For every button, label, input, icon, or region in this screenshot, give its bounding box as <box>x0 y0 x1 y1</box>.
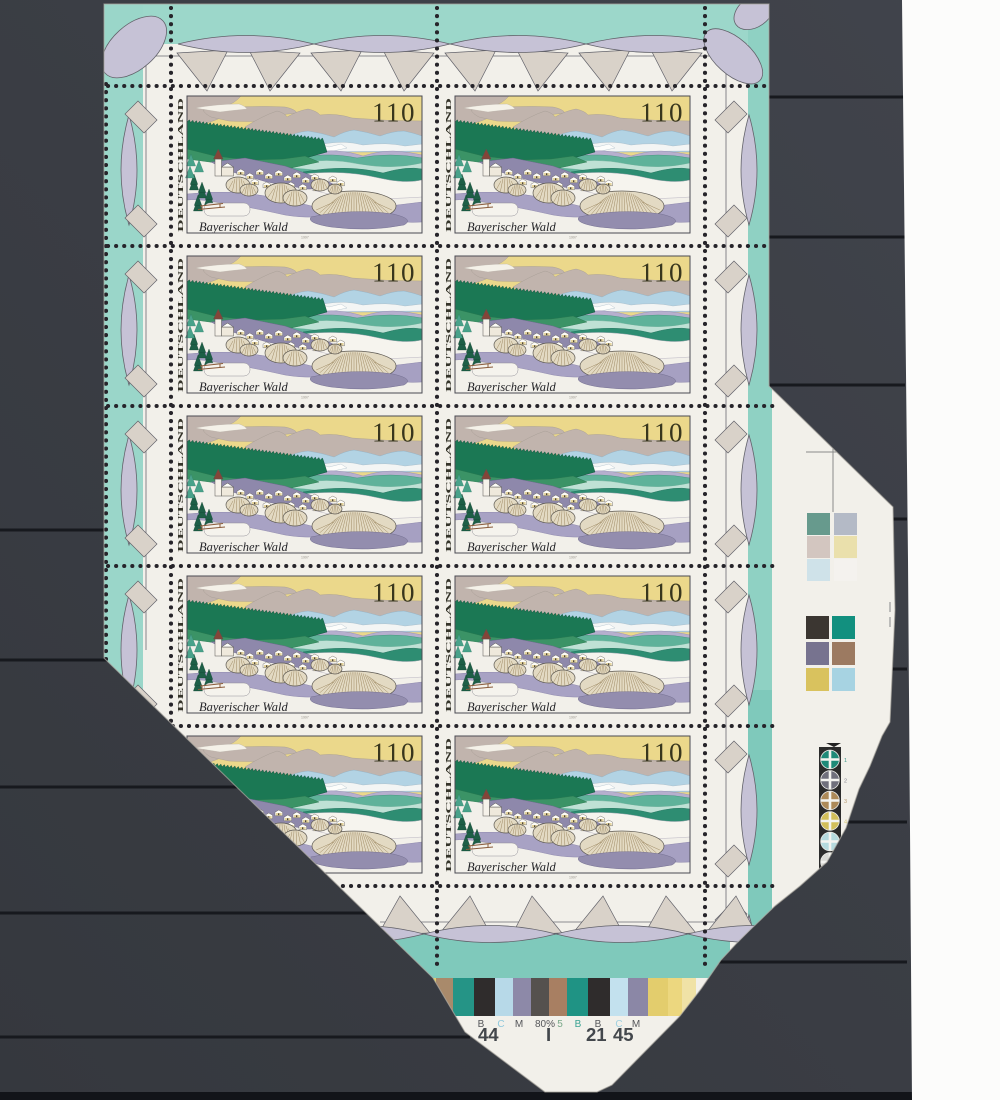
svg-text:45: 45 <box>613 1024 634 1045</box>
svg-text:1: 1 <box>844 758 847 764</box>
svg-text:5: 5 <box>557 1019 563 1030</box>
svg-text:I: I <box>546 1024 551 1045</box>
svg-text:3: 3 <box>844 799 847 805</box>
svg-text:2: 2 <box>844 779 847 785</box>
svg-text:44: 44 <box>478 1024 499 1045</box>
svg-text:B: B <box>575 1019 582 1030</box>
svg-text:21: 21 <box>586 1024 607 1045</box>
svg-text:M: M <box>515 1019 523 1030</box>
